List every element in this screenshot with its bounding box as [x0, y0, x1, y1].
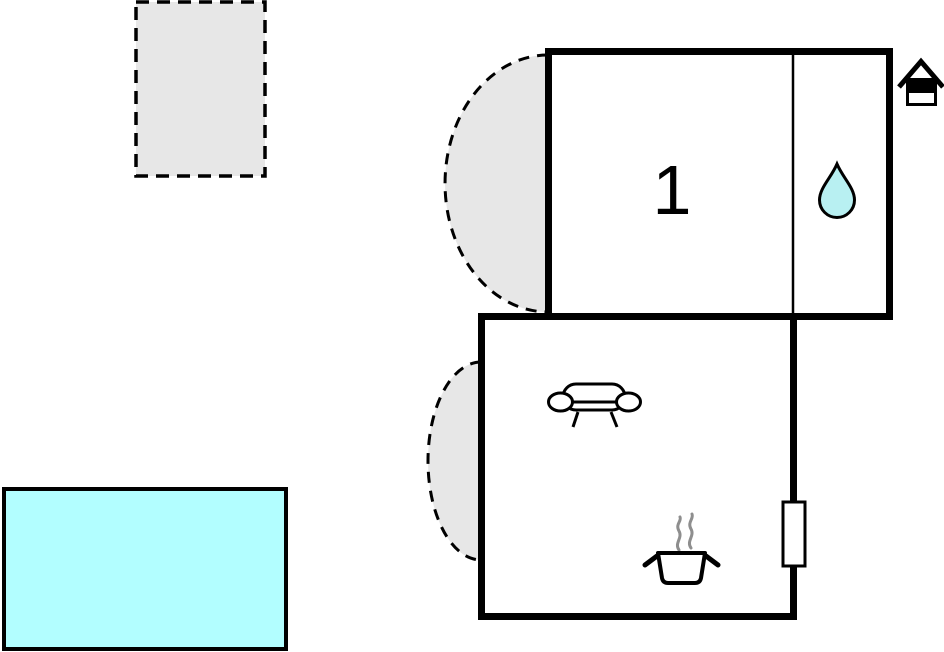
floor-plan: 1	[0, 0, 944, 652]
sofa-armrest-right	[617, 393, 641, 411]
house-body-top	[906, 78, 937, 93]
door-swing-arc-top	[445, 55, 548, 312]
room-number-label: 1	[653, 151, 692, 229]
pot-body	[658, 553, 705, 583]
sofa-armrest-left	[549, 393, 573, 411]
pool-rect	[4, 489, 286, 649]
dashed-outline-area	[136, 2, 265, 176]
radiator	[783, 502, 805, 566]
house-icon	[899, 62, 943, 105]
door-swing-arc-bottom	[428, 362, 481, 560]
room-living-kitchen	[482, 317, 794, 617]
floor-plan-svg: 1	[0, 0, 944, 652]
